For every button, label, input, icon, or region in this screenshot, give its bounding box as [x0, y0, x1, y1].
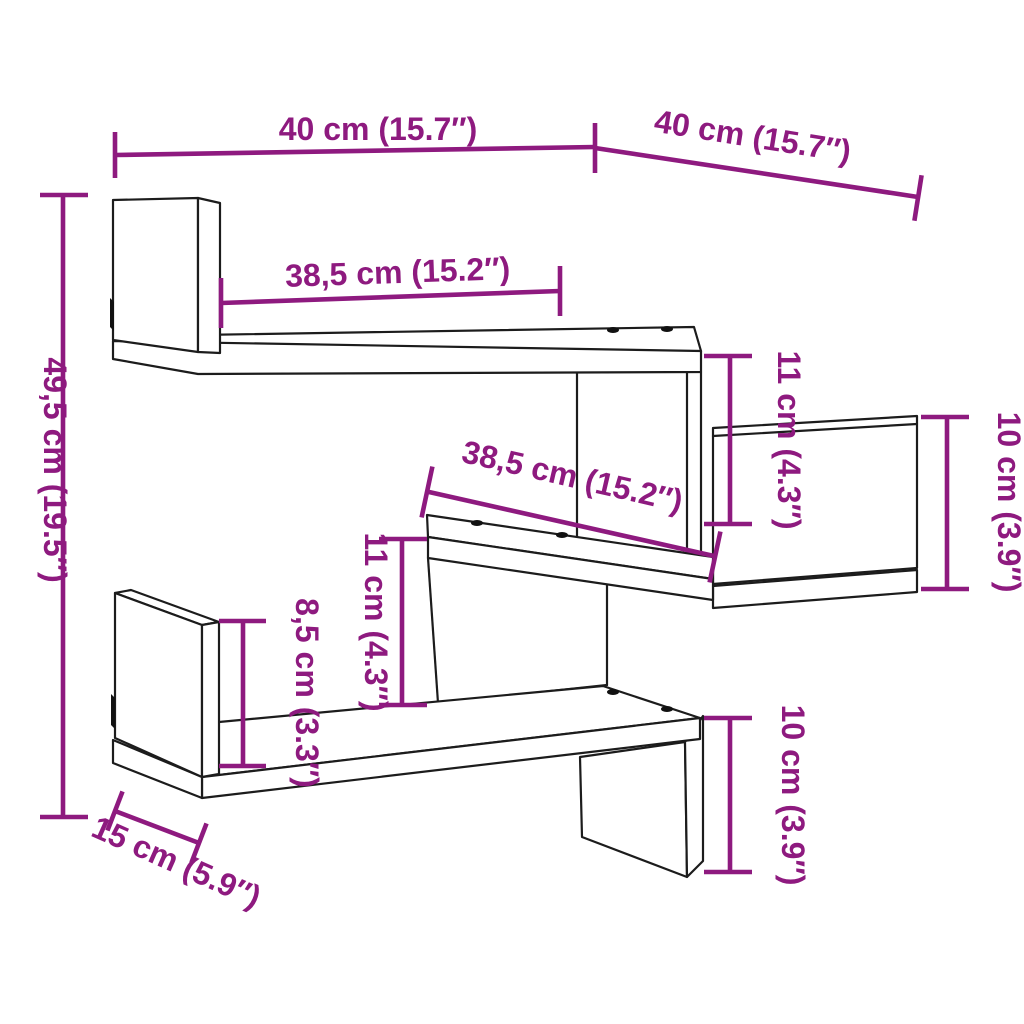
dimension-gap-middle: 11 cm (4.3″)	[358, 533, 427, 712]
dim-label-panel-bottom: 10 cm (3.9″)	[775, 705, 811, 886]
top-panel-side	[198, 198, 220, 353]
corner-post-upper	[577, 358, 701, 555]
dim-label-shelf-upper: 38,5 cm (15.2″)	[284, 250, 510, 294]
dim-label-panel-right: 10 cm (3.9″)	[991, 412, 1024, 593]
dimension-diagram: 40 cm (15.7″) 40 cm (15.7″) 38,5 cm (15.…	[0, 0, 1024, 1024]
right-panel-front	[713, 416, 917, 584]
dimension-width-top-right: 40 cm (15.7″)	[595, 103, 922, 221]
top-panel-front	[113, 198, 198, 352]
dim-label-gap-upper: 11 cm (4.3″)	[771, 351, 807, 530]
dimension-height-total: 49,5 cm (19.5″)	[37, 195, 88, 817]
dim-label-width-top-left: 40 cm (15.7″)	[279, 111, 478, 147]
dimension-depth: 15 cm (5.9″)	[87, 791, 267, 915]
dim-label-depth: 15 cm (5.9″)	[87, 809, 267, 915]
dimension-shelf-upper: 38,5 cm (15.2″)	[221, 250, 560, 328]
screw-dots	[471, 326, 673, 712]
dim-label-height-total: 49,5 cm (19.5″)	[37, 357, 73, 582]
hanging-panel-front	[580, 742, 687, 877]
dimension-panel-right: 10 cm (3.9″)	[921, 412, 1024, 593]
mount-wedge-top	[110, 298, 114, 331]
dimension-width-top-left: 40 cm (15.7″)	[115, 111, 595, 178]
dim-label-gap-middle: 11 cm (4.3″)	[358, 533, 394, 712]
bottom-panel-side	[202, 622, 219, 777]
dimension-panel-bottom: 10 cm (3.9″)	[704, 705, 811, 886]
mount-wedge-bottom	[111, 694, 115, 729]
corner-shelf-diagram: 40 cm (15.7″) 40 cm (15.7″) 38,5 cm (15.…	[0, 0, 1024, 1024]
dim-label-panel-lower-left: 8,5 cm (3.3″)	[289, 598, 325, 788]
